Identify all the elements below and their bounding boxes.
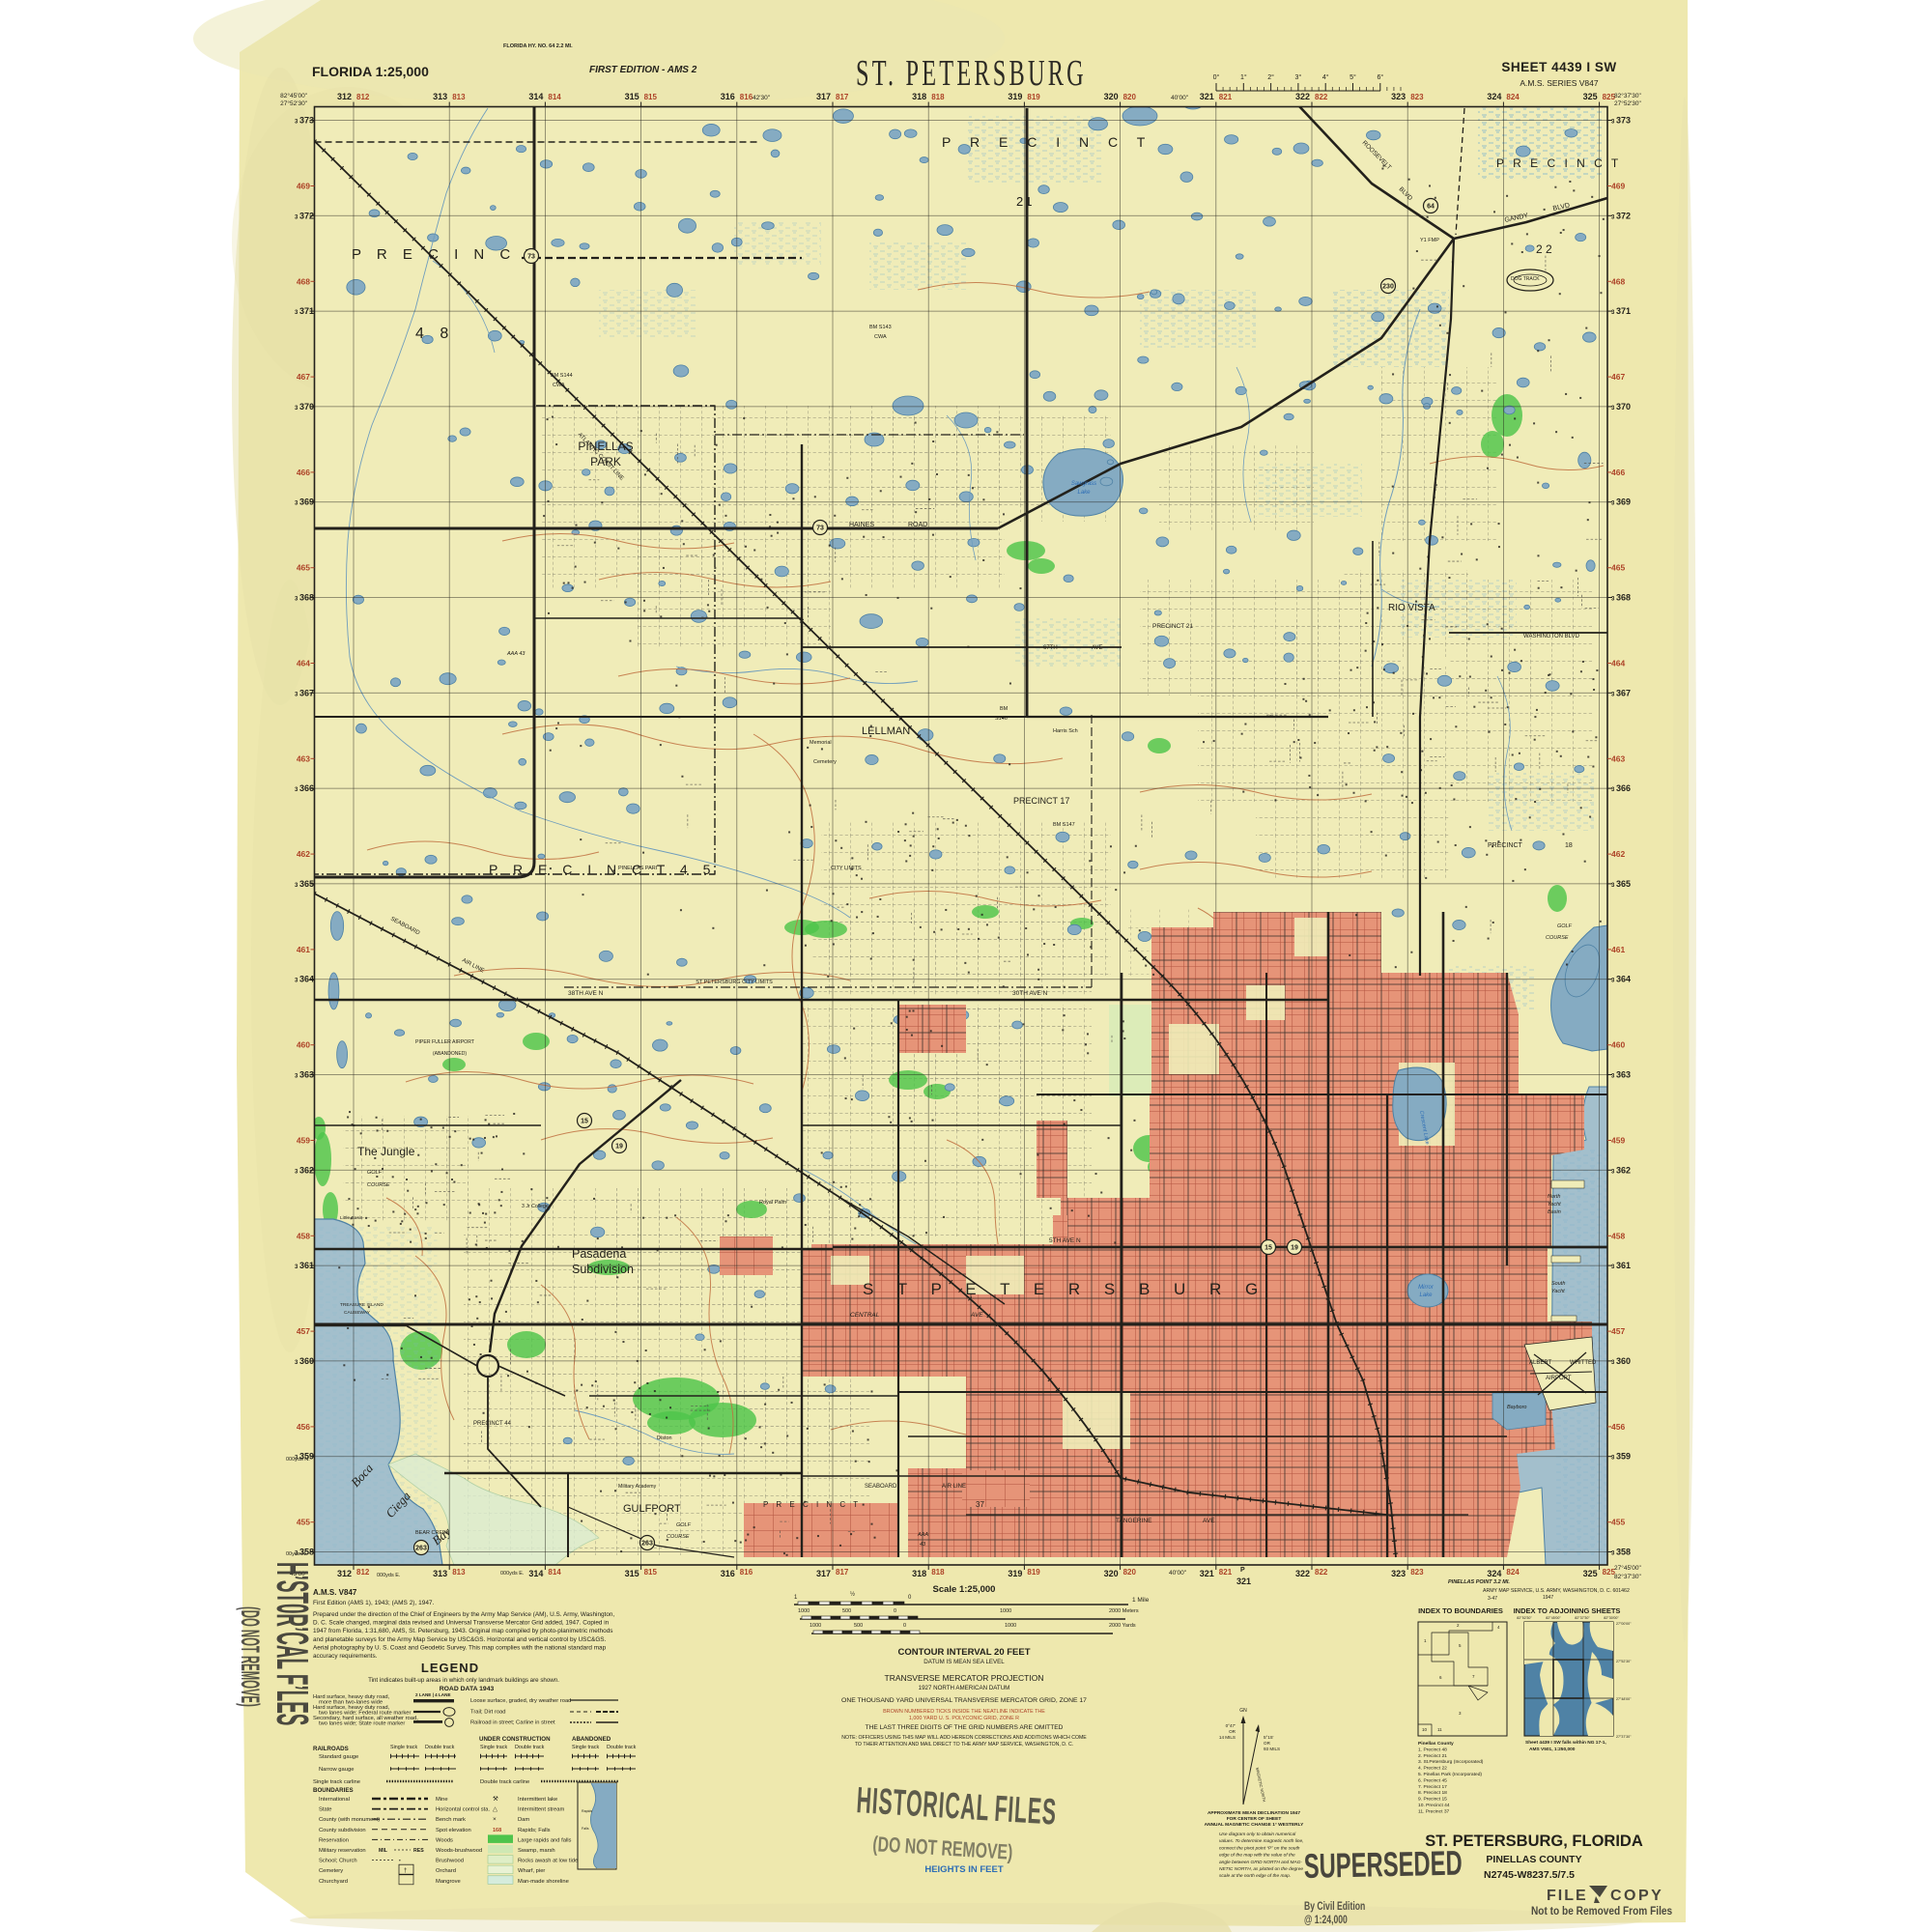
svg-text:460: 460 <box>1611 1040 1625 1050</box>
svg-text:324: 324 <box>1487 1569 1501 1578</box>
svg-text:816: 816 <box>740 93 753 101</box>
svg-text:15: 15 <box>1264 1245 1272 1252</box>
svg-text:1927 NORTH AMERICAN DATUM: 1927 NORTH AMERICAN DATUM <box>919 1685 1010 1691</box>
svg-text:366: 366 <box>1616 783 1631 793</box>
svg-text:Rocks awash at low tide: Rocks awash at low tide <box>518 1859 578 1864</box>
svg-text:TO THEIR ATTENTION AND MAIL: TO THEIR ATTENTION AND MAIL DIRECT TO TH… <box>855 1742 1073 1747</box>
svg-text:82°37'30": 82°37'30" <box>1614 92 1642 99</box>
svg-text:21: 21 <box>1016 194 1034 209</box>
svg-text:1 Mile: 1 Mile <box>1132 1597 1150 1604</box>
svg-text:459: 459 <box>297 1136 310 1146</box>
svg-text:Double track: Double track <box>607 1745 637 1750</box>
svg-text:462: 462 <box>1611 849 1625 859</box>
svg-text:325: 325 <box>1583 1569 1598 1578</box>
svg-text:Brushwood: Brushwood <box>436 1859 464 1864</box>
svg-text:10. Precinct 44: 10. Precinct 44 <box>1418 1803 1450 1808</box>
svg-text:BOUNDARIES: BOUNDARIES <box>313 1787 354 1794</box>
svg-text:0: 0 <box>894 1608 896 1614</box>
svg-text:×: × <box>493 1816 497 1823</box>
svg-text:000yds E.: 000yds E. <box>377 1573 401 1578</box>
svg-text:RES: RES <box>413 1848 424 1854</box>
svg-text:AMS V501, 1:250,000: AMS V501, 1:250,000 <box>1529 1747 1576 1752</box>
svg-text:Wharf, pier: Wharf, pier <box>518 1868 545 1874</box>
svg-text:369: 369 <box>1616 497 1631 507</box>
svg-text:318: 318 <box>912 1569 926 1578</box>
svg-text:9. Precinct 15: 9. Precinct 15 <box>1418 1797 1447 1803</box>
svg-text:FILE: FILE <box>1547 1888 1588 1904</box>
svg-text:P R E C I N C T 4 5: P R E C I N C T 4 5 <box>489 862 716 877</box>
svg-text:14 MILS: 14 MILS <box>1219 1735 1236 1740</box>
svg-text:373: 373 <box>1616 116 1631 126</box>
svg-text:360: 360 <box>299 1356 314 1366</box>
svg-text:Military reservation: Military reservation <box>319 1848 366 1854</box>
svg-text:Falls: Falls <box>582 1827 589 1831</box>
svg-text:S146: S146 <box>995 716 1008 722</box>
svg-text:465: 465 <box>297 563 310 573</box>
svg-text:GOLF: GOLF <box>1557 923 1573 929</box>
svg-text:466: 466 <box>1611 468 1625 477</box>
svg-text:5°15': 5°15' <box>1264 1735 1274 1740</box>
svg-text:values. To determine magnetic: values. To determine magnetic north line… <box>1219 1838 1304 1844</box>
svg-text:822: 822 <box>1315 1568 1328 1577</box>
svg-text:BM: BM <box>1000 706 1009 712</box>
svg-text:40'00": 40'00" <box>1169 1570 1187 1577</box>
svg-text:10: 10 <box>1422 1727 1428 1732</box>
svg-text:Railroad in street; Carline in: Railroad in street; Carline in street <box>470 1720 555 1726</box>
svg-text:322: 322 <box>1295 92 1310 101</box>
svg-text:INDEX TO BOUNDARIES: INDEX TO BOUNDARIES <box>1418 1606 1503 1615</box>
svg-text:BROWN NUMBERED TICKS INSIDE TH: BROWN NUMBERED TICKS INSIDE THE NEATLINE… <box>883 1709 1045 1715</box>
svg-text:North: North <box>1548 1194 1560 1200</box>
svg-text:SHEET 4439 I SW: SHEET 4439 I SW <box>1501 60 1616 74</box>
svg-text:Tint indicates built-up areas: Tint indicates built-up areas in which o… <box>368 1677 559 1684</box>
svg-text:2 2: 2 2 <box>1536 242 1552 256</box>
svg-text:Horizontal control sta.: Horizontal control sta. <box>436 1807 490 1813</box>
svg-text:PIPER FULLER AIRPORT: PIPER FULLER AIRPORT <box>415 1039 475 1045</box>
svg-text:320: 320 <box>1104 92 1119 101</box>
svg-text:Royal Palm: Royal Palm <box>759 1200 787 1206</box>
svg-text:000yds E.: 000yds E. <box>500 1571 525 1577</box>
svg-text:463: 463 <box>1611 753 1625 763</box>
svg-text:ONE THOUSAND YARD UNIVERSAL TR: ONE THOUSAND YARD UNIVERSAL TRANSVERSE M… <box>841 1697 1087 1704</box>
svg-text:6°: 6° <box>1377 73 1383 81</box>
svg-text:324: 324 <box>1487 92 1501 101</box>
svg-text:19: 19 <box>1291 1245 1298 1252</box>
svg-text:CWA: CWA <box>553 383 565 388</box>
svg-text:ST PETERSBURG CITY LIMITS: ST PETERSBURG CITY LIMITS <box>696 980 773 985</box>
svg-text:1947: 1947 <box>1543 1595 1553 1601</box>
svg-text:821: 821 <box>1219 93 1233 101</box>
svg-text:Subdivision: Subdivision <box>572 1263 634 1276</box>
svg-text:372: 372 <box>299 211 314 220</box>
svg-text:366: 366 <box>299 783 314 793</box>
svg-text:S T P E T E R S B U R G: S T P E T E R S B U R G <box>863 1280 1267 1298</box>
svg-text:AIRPORT: AIRPORT <box>1546 1376 1572 1381</box>
svg-text:Spot elevation: Spot elevation <box>436 1828 471 1833</box>
svg-text:361: 361 <box>1616 1261 1631 1270</box>
svg-text:320: 320 <box>1104 1569 1119 1578</box>
svg-text:373: 373 <box>299 116 314 126</box>
svg-text:82°45'00": 82°45'00" <box>1546 1616 1561 1620</box>
svg-text:Dam: Dam <box>518 1817 529 1823</box>
svg-text:27°48'00": 27°48'00" <box>1616 1697 1632 1701</box>
svg-text:AIR LINE: AIR LINE <box>942 1484 966 1490</box>
svg-text:821: 821 <box>1219 1568 1233 1577</box>
svg-text:COPY: COPY <box>1610 1888 1663 1904</box>
svg-text:COURSE: COURSE <box>667 1534 690 1540</box>
svg-text:82°37'30": 82°37'30" <box>1614 1573 1642 1580</box>
svg-text:Large rapids and falls: Large rapids and falls <box>518 1837 572 1843</box>
svg-text:321: 321 <box>1200 92 1214 101</box>
svg-text:314: 314 <box>528 1569 543 1578</box>
svg-text:CITY LIMITS: CITY LIMITS <box>831 866 862 871</box>
svg-text:FLORIDA HY. NO. 64 2.2 MI.: FLORIDA HY. NO. 64 2.2 MI. <box>503 43 573 49</box>
svg-text:MIL: MIL <box>379 1848 388 1854</box>
svg-text:824: 824 <box>1506 93 1520 101</box>
svg-text:459: 459 <box>1611 1136 1625 1146</box>
svg-text:2000 Yards: 2000 Yards <box>1109 1623 1136 1629</box>
svg-text:edge of the map with the value: edge of the map with the value of the <box>1219 1853 1295 1859</box>
svg-text:500: 500 <box>854 1623 863 1629</box>
svg-text:Churchyard: Churchyard <box>319 1879 348 1885</box>
svg-text:Cemetery: Cemetery <box>813 759 837 765</box>
svg-text:1000: 1000 <box>798 1608 810 1614</box>
svg-text:Standard gauge: Standard gauge <box>319 1754 358 1760</box>
svg-text:The Jungle: The Jungle <box>357 1145 415 1158</box>
svg-text:Basin: Basin <box>1548 1209 1561 1215</box>
svg-text:P R E C I N C T: P R E C I N C T <box>763 1500 861 1509</box>
svg-text:73: 73 <box>816 526 824 532</box>
svg-text:818: 818 <box>931 93 945 101</box>
svg-text:2. Precinct 21: 2. Precinct 21 <box>1418 1753 1447 1759</box>
svg-text:82°52'30": 82°52'30" <box>1517 1616 1532 1620</box>
svg-text:1000: 1000 <box>1000 1608 1011 1614</box>
svg-text:0°: 0° <box>1213 73 1220 81</box>
svg-text:Mirror: Mirror <box>1418 1285 1435 1291</box>
svg-text:COURSE: COURSE <box>1546 935 1569 941</box>
svg-text:363: 363 <box>299 1070 314 1080</box>
svg-text:1. Precinct 48: 1. Precinct 48 <box>1418 1747 1447 1752</box>
svg-text:Scale 1:25,000: Scale 1:25,000 <box>933 1584 996 1595</box>
svg-text:3 Jr College: 3 Jr College <box>522 1204 549 1209</box>
svg-text:Single track carline: Single track carline <box>313 1779 360 1785</box>
svg-text:CENTRAL: CENTRAL <box>850 1312 880 1319</box>
svg-text:823: 823 <box>1410 93 1424 101</box>
svg-text:11: 11 <box>1437 1727 1442 1732</box>
svg-text:Mangrove: Mangrove <box>436 1879 461 1885</box>
svg-text:County (with monument): County (with monument) <box>319 1817 380 1823</box>
svg-text:1°: 1° <box>1240 73 1247 81</box>
svg-text:42'30": 42'30" <box>753 95 771 101</box>
svg-text:825: 825 <box>1603 1568 1616 1577</box>
svg-text:Single track: Single track <box>572 1745 599 1750</box>
svg-text:1000: 1000 <box>1005 1623 1016 1629</box>
svg-text:@ 1:24,000: @ 1:24,000 <box>1304 1915 1348 1927</box>
svg-text:Bench mark: Bench mark <box>436 1817 466 1823</box>
svg-text:OR: OR <box>1264 1741 1271 1746</box>
svg-text:First Edition (AMS 1), 1943; (: First Edition (AMS 1), 1943; (AMS 2), 19… <box>313 1600 435 1606</box>
svg-text:263: 263 <box>641 1541 653 1548</box>
svg-text:PRECINCT 21: PRECINCT 21 <box>1152 623 1194 630</box>
svg-text:TANGERINE: TANGERINE <box>1116 1518 1152 1524</box>
svg-text:Sheet 4439 I SW falls within N: Sheet 4439 I SW falls within NG 17-1, <box>1525 1740 1606 1746</box>
svg-text:364: 364 <box>299 975 314 984</box>
svg-text:371: 371 <box>299 306 314 316</box>
svg-text:Swamp, marsh: Swamp, marsh <box>518 1848 555 1854</box>
svg-text:SEABOARD: SEABOARD <box>865 1484 897 1490</box>
svg-text:67TH: 67TH <box>1043 645 1058 651</box>
svg-text:By Civil Edition: By Civil Edition <box>1304 1901 1365 1914</box>
svg-text:PRECINCT 44: PRECINCT 44 <box>473 1421 512 1427</box>
svg-text:323: 323 <box>1391 92 1406 101</box>
svg-text:358: 358 <box>1616 1548 1631 1557</box>
svg-text:318: 318 <box>912 92 926 101</box>
svg-text:ROAD DATA 1943: ROAD DATA 1943 <box>440 1686 495 1692</box>
svg-text:38TH AVE N: 38TH AVE N <box>568 990 604 997</box>
svg-text:467: 467 <box>297 372 310 382</box>
svg-text:International: International <box>319 1797 350 1803</box>
svg-text:27°52'30": 27°52'30" <box>280 99 308 107</box>
svg-text:6. Precinct 45: 6. Precinct 45 <box>1418 1777 1447 1783</box>
svg-text:5TH AVE N: 5TH AVE N <box>1049 1237 1081 1244</box>
svg-text:TREASURE ISLAND: TREASURE ISLAND <box>340 1302 384 1308</box>
svg-text:461: 461 <box>1611 945 1625 954</box>
svg-text:UNDER CONSTRUCTION: UNDER CONSTRUCTION <box>479 1736 551 1743</box>
svg-text:817: 817 <box>836 93 849 101</box>
svg-text:Not to be Removed From Files: Not to be Removed From Files <box>1531 1905 1672 1918</box>
svg-text:322: 322 <box>1295 1569 1310 1578</box>
svg-text:820: 820 <box>1123 93 1137 101</box>
svg-text:455: 455 <box>1611 1518 1625 1527</box>
svg-text:820: 820 <box>1123 1568 1137 1577</box>
svg-text:15: 15 <box>581 1119 588 1125</box>
svg-text:AVE: AVE <box>1203 1518 1215 1524</box>
svg-text:(ABANDONED): (ABANDONED) <box>433 1051 467 1057</box>
svg-text:815: 815 <box>644 93 658 101</box>
svg-text:scale at the north edge of the: scale at the north edge of the map. <box>1219 1873 1291 1879</box>
svg-text:5. Pinellas Park (Incorporated: 5. Pinellas Park (Incorporated) <box>1418 1772 1482 1777</box>
svg-text:COURSE: COURSE <box>367 1182 390 1188</box>
svg-text:0: 0 <box>903 1623 906 1629</box>
svg-text:P R E C I N C T: P R E C I N C T <box>942 134 1152 150</box>
svg-text:Intermittent stream: Intermittent stream <box>518 1807 564 1813</box>
svg-text:Rapids; Falls: Rapids; Falls <box>518 1828 551 1833</box>
svg-text:H’ST0R’CAL F’LES: H’ST0R’CAL F’LES <box>268 1562 317 1725</box>
svg-text:1000: 1000 <box>810 1623 821 1629</box>
svg-text:angle between GRID NORTH and M: angle between GRID NORTH and MAG- <box>1219 1860 1302 1865</box>
svg-text:BM S147: BM S147 <box>1053 822 1075 828</box>
svg-text:GULFPORT: GULFPORT <box>623 1503 681 1515</box>
svg-text:360: 360 <box>1616 1356 1631 1366</box>
svg-text:RAILROADS: RAILROADS <box>313 1746 349 1752</box>
svg-text:362: 362 <box>299 1165 314 1175</box>
svg-text:AVE: AVE <box>970 1312 983 1319</box>
svg-text:4°: 4° <box>1322 73 1329 81</box>
svg-text:8. Precinct 18: 8. Precinct 18 <box>1418 1790 1447 1796</box>
svg-text:823: 823 <box>1410 1568 1424 1577</box>
svg-text:3-47: 3-47 <box>1488 1596 1497 1602</box>
svg-text:CWA: CWA <box>874 334 887 340</box>
svg-text:Prepared under the direction o: Prepared under the direction of the Chie… <box>313 1611 614 1618</box>
svg-text:813: 813 <box>452 1568 466 1577</box>
svg-text:315: 315 <box>625 92 639 101</box>
svg-text:82°45'00": 82°45'00" <box>280 92 308 99</box>
svg-text:PINELLAS COUNTY: PINELLAS COUNTY <box>1486 1854 1581 1865</box>
svg-text:P R E C I N C T: P R E C I N C T <box>1496 156 1621 170</box>
svg-text:314: 314 <box>528 92 543 101</box>
svg-text:FOR CENTER OF SHEET: FOR CENTER OF SHEET <box>1227 1816 1282 1822</box>
svg-text:Double track: Double track <box>425 1745 455 1750</box>
svg-text:230: 230 <box>1382 284 1394 291</box>
svg-text:Woods: Woods <box>436 1837 453 1843</box>
svg-text:ST. PETERSBURG: ST. PETERSBURG <box>856 53 1087 94</box>
svg-text:367: 367 <box>299 688 314 697</box>
svg-text:500: 500 <box>842 1608 851 1614</box>
svg-text:000yds N.: 000yds N. <box>286 1457 310 1463</box>
svg-text:Memorial: Memorial <box>810 740 832 746</box>
svg-text:South: South <box>1551 1281 1565 1287</box>
svg-text:813: 813 <box>452 93 466 101</box>
svg-text:Harris Sch: Harris Sch <box>1053 728 1078 734</box>
svg-text:313: 313 <box>433 92 447 101</box>
svg-text:825: 825 <box>1603 93 1616 101</box>
svg-text:and planetable surveys for the: and planetable surveys for the Army Map … <box>313 1636 607 1643</box>
svg-text:819: 819 <box>1027 93 1040 101</box>
svg-text:GOLF: GOLF <box>676 1522 692 1528</box>
svg-text:AAA: AAA <box>917 1532 928 1538</box>
svg-text:815: 815 <box>644 1568 658 1577</box>
svg-text:Y1 FMP: Y1 FMP <box>1420 238 1439 243</box>
svg-text:363: 363 <box>1616 1070 1631 1080</box>
svg-text:NOTE: OFFICERS USING THIS MAP: NOTE: OFFICERS USING THIS MAP WILL ADD H… <box>841 1735 1087 1741</box>
svg-text:HAINES: HAINES <box>849 522 874 528</box>
svg-text:317: 317 <box>816 92 831 101</box>
svg-text:370: 370 <box>1616 402 1631 412</box>
svg-text:362: 362 <box>1616 1165 1631 1175</box>
svg-text:BM S143: BM S143 <box>869 325 892 330</box>
svg-text:2 LANE | 4 LANE: 2 LANE | 4 LANE <box>415 1692 451 1697</box>
svg-text:Loose surface, graded, dry wea: Loose surface, graded, dry weather road <box>470 1698 571 1704</box>
svg-text:ANNUAL MAGNETIC CHANGE 1° WEST: ANNUAL MAGNETIC CHANGE 1° WESTERLY <box>1205 1822 1304 1828</box>
svg-text:365: 365 <box>299 879 314 889</box>
svg-text:Sawgrass: Sawgrass <box>1071 481 1096 487</box>
svg-text:LEGEND: LEGEND <box>421 1661 479 1675</box>
svg-text:812: 812 <box>356 1568 370 1577</box>
svg-text:73: 73 <box>527 254 535 261</box>
svg-text:458: 458 <box>297 1231 310 1240</box>
svg-text:Intermittent lake: Intermittent lake <box>518 1797 557 1803</box>
svg-text:PRECINCT 17: PRECINCT 17 <box>1013 796 1069 806</box>
svg-text:Yacht: Yacht <box>1551 1289 1565 1294</box>
svg-text:315: 315 <box>625 1569 639 1578</box>
svg-text:456: 456 <box>1611 1422 1625 1432</box>
svg-text:TRANSVERSE MERCATOR PROJECTI: TRANSVERSE MERCATOR PROJECTION <box>885 1673 1044 1683</box>
svg-text:469: 469 <box>297 182 310 191</box>
svg-text:THE LAST THREE DIGITS OF THE: THE LAST THREE DIGITS OF THE GRID NUMBER… <box>866 1724 1064 1731</box>
svg-text:312: 312 <box>337 1569 352 1578</box>
svg-text:SUPERSEDED: SUPERSEDED <box>1303 1845 1463 1886</box>
svg-text:Single track: Single track <box>390 1745 417 1750</box>
svg-text:313: 313 <box>433 1569 447 1578</box>
svg-text:1947 from Florida, 1:31,680, A: 1947 from Florida, 1:31,680, AMS, St. Pe… <box>313 1628 612 1634</box>
svg-text:WASHINGTON BLVD: WASHINGTON BLVD <box>1523 634 1580 639</box>
svg-text:316: 316 <box>721 1569 735 1578</box>
svg-text:HEIGHTS IN FEET: HEIGHTS IN FEET <box>924 1864 1003 1875</box>
svg-text:1,000 YARD U. S. POLYCONIC GRI: 1,000 YARD U. S. POLYCONIC GRID, ZONE R <box>909 1716 1019 1721</box>
svg-text:814: 814 <box>548 93 561 101</box>
svg-text:467: 467 <box>1611 372 1625 382</box>
svg-text:INDEX TO ADJOINING SHEETS: INDEX TO ADJOINING SHEETS <box>1514 1606 1621 1615</box>
svg-text:Lake: Lake <box>1077 490 1091 496</box>
svg-text:462: 462 <box>297 849 310 859</box>
svg-text:316: 316 <box>721 92 735 101</box>
svg-text:27°37'30": 27°37'30" <box>1616 1735 1632 1739</box>
svg-text:FIRST EDITION - AMS 2: FIRST EDITION - AMS 2 <box>589 65 697 75</box>
svg-text:GN: GN <box>1239 1708 1247 1714</box>
svg-text:DATUM IS MEAN SEA LEVEL: DATUM IS MEAN SEA LEVEL <box>923 1659 1005 1665</box>
svg-text:64: 64 <box>1427 204 1435 211</box>
svg-text:466: 466 <box>297 468 310 477</box>
svg-text:312: 312 <box>337 92 352 101</box>
svg-text:Double track carline: Double track carline <box>480 1779 529 1785</box>
svg-text:3. St.Petersburg (Incorporated: 3. St.Petersburg (Incorporated) <box>1418 1759 1484 1765</box>
svg-text:321: 321 <box>1236 1577 1251 1586</box>
svg-text:accuracy requirements.: accuracy requirements. <box>313 1653 378 1660</box>
svg-text:460: 460 <box>297 1040 310 1050</box>
svg-text:Bayboro: Bayboro <box>1507 1405 1527 1410</box>
svg-text:27°52'30": 27°52'30" <box>1614 99 1642 107</box>
svg-text:371: 371 <box>1616 306 1631 316</box>
svg-text:ABANDONED: ABANDONED <box>572 1736 611 1743</box>
svg-text:19: 19 <box>615 1144 623 1151</box>
svg-text:Military Academy: Military Academy <box>618 1484 657 1490</box>
svg-text:OR: OR <box>1229 1729 1236 1734</box>
svg-text:DOG TRACK: DOG TRACK <box>1511 276 1540 282</box>
svg-text:Double track: Double track <box>515 1745 545 1750</box>
svg-text:AVE: AVE <box>1092 645 1103 651</box>
svg-text:82°37'30": 82°37'30" <box>1575 1616 1590 1620</box>
svg-text:00yds N.: 00yds N. <box>286 1551 307 1557</box>
svg-text:364: 364 <box>1616 975 1631 984</box>
svg-text:7. Precinct 17: 7. Precinct 17 <box>1418 1784 1447 1790</box>
svg-text:3°: 3° <box>1295 73 1302 81</box>
svg-text:Rapids: Rapids <box>582 1809 592 1813</box>
svg-text:A.M.S. SERIES V847: A.M.S. SERIES V847 <box>1520 78 1599 88</box>
svg-text:27°45'00": 27°45'00" <box>1614 1564 1642 1572</box>
svg-text:37: 37 <box>976 1500 984 1509</box>
svg-text:319: 319 <box>1008 1569 1022 1578</box>
svg-text:819: 819 <box>1027 1568 1040 1577</box>
svg-text:Mine: Mine <box>436 1797 448 1803</box>
svg-text:368: 368 <box>1616 593 1631 603</box>
svg-text:Pinellas County: Pinellas County <box>1418 1741 1454 1747</box>
svg-text:370: 370 <box>299 402 314 412</box>
svg-text:APPROXIMATE MEAN DECLINATION 1: APPROXIMATE MEAN DECLINATION 1947 <box>1207 1810 1300 1816</box>
svg-text:PINELLAS PARI: PINELLAS PARI <box>618 866 658 871</box>
svg-text:Pasadena: Pasadena <box>572 1247 626 1261</box>
svg-text:CAUSEWAY: CAUSEWAY <box>344 1310 371 1316</box>
svg-text:Cemetery: Cemetery <box>319 1868 343 1874</box>
svg-text:(DO NOT REMOVE): (DO NOT REMOVE) <box>235 1606 264 1707</box>
svg-text:ARMY MAP SERVICE, U.S. ARMY, W: ARMY MAP SERVICE, U.S. ARMY, WASHINGTON,… <box>1483 1588 1630 1594</box>
svg-text:WHITTED: WHITTED <box>1570 1360 1597 1366</box>
svg-text:168: 168 <box>493 1828 501 1833</box>
svg-text:2000 Meters: 2000 Meters <box>1109 1608 1139 1614</box>
svg-text:two lanes wide; State route ma: two lanes wide; State route marker <box>319 1721 405 1727</box>
svg-text:Trail; Dirt road: Trail; Dirt road <box>470 1709 506 1715</box>
svg-text:D. C. Scale changed, margina: D. C. Scale changed, marginal data revis… <box>313 1620 610 1627</box>
svg-text:464: 464 <box>297 659 310 668</box>
